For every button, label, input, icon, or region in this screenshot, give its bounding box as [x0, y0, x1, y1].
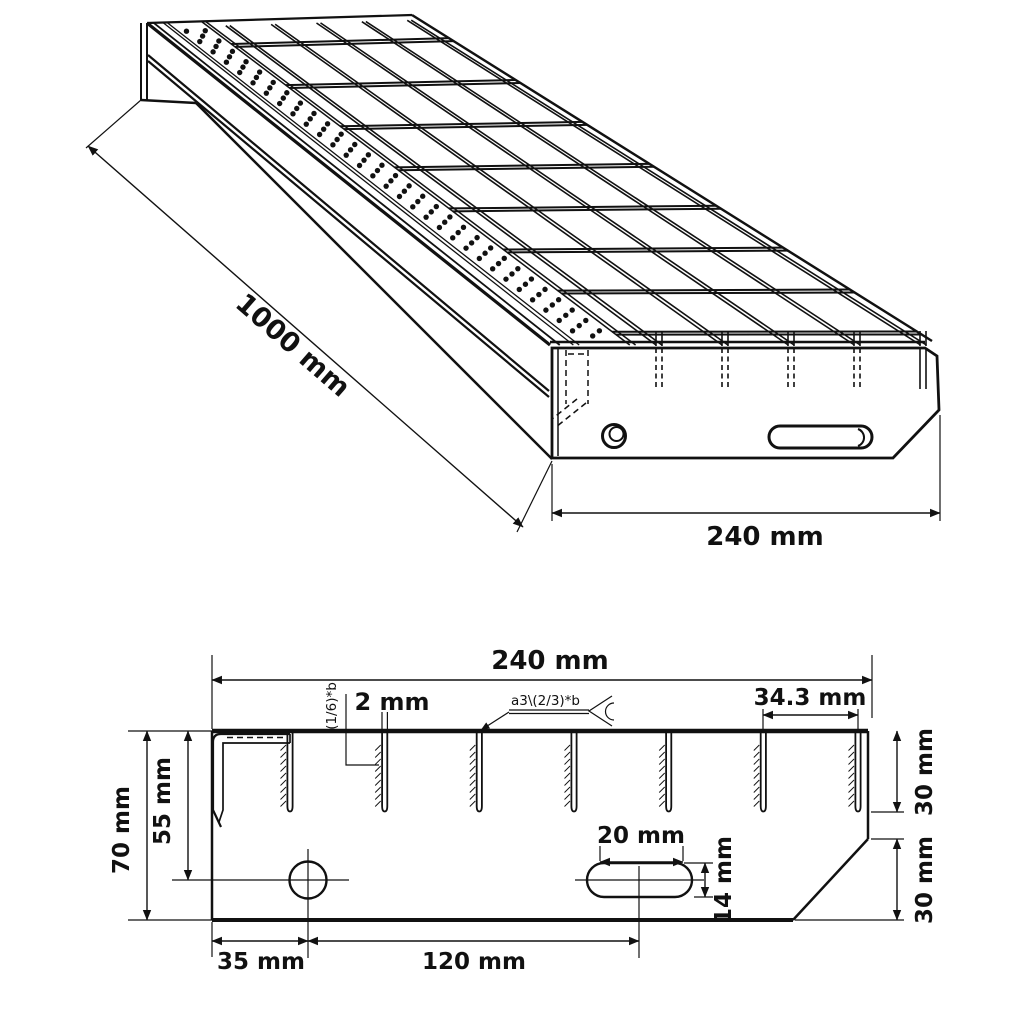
weld-spec-label: a3\(2/3)*b: [511, 693, 580, 709]
tread-front-face: [148, 55, 552, 459]
bar-note-label: (1/6)*b: [324, 682, 340, 730]
bar-height-dimension-label: 30 mm: [912, 728, 938, 816]
bar-spacing-dimension-label: 34.3 mm: [754, 685, 867, 711]
technical-drawing: 1000 mm 240 mm: [0, 0, 1024, 1024]
grating-grid: [147, 20, 926, 345]
section-bearing-bars: [281, 731, 861, 812]
section-slotted-hole: [575, 863, 704, 958]
nosing-height-dimension-label: 55 mm: [150, 757, 176, 845]
end-plate: [550, 331, 939, 458]
hole-offset-dimension-label: 35 mm: [217, 949, 305, 975]
bar-thickness-dimension-label: 2 mm: [354, 688, 429, 716]
iso-width-dimension-label: 240 mm: [706, 522, 824, 552]
slot-height-dimension-label: 14 mm: [711, 836, 737, 924]
section-dimensions: 240 mm 2 mm (1/6)*b a3\(2/3)*b 34.3 mm: [109, 646, 938, 975]
hole-to-slot-dimension-label: 120 mm: [422, 949, 526, 975]
chamfer-dimension-label: 30 mm: [912, 836, 938, 924]
slot-length-dimension-label: 20 mm: [597, 823, 685, 849]
isometric-view: 1000 mm 240 mm: [86, 15, 940, 552]
iso-length-dimension-label: 1000 mm: [229, 288, 356, 404]
weld-symbol: a3\(2/3)*b: [481, 693, 614, 730]
plate-height-dimension-label: 70 mm: [109, 786, 135, 874]
section-plate-outline: [128, 731, 868, 920]
section-view: 240 mm 2 mm (1/6)*b a3\(2/3)*b 34.3 mm: [109, 646, 938, 975]
section-nosing-angle: [213, 734, 290, 827]
section-width-dimension-label: 240 mm: [491, 646, 609, 676]
drawing-page: 1000 mm 240 mm: [0, 0, 1024, 1024]
